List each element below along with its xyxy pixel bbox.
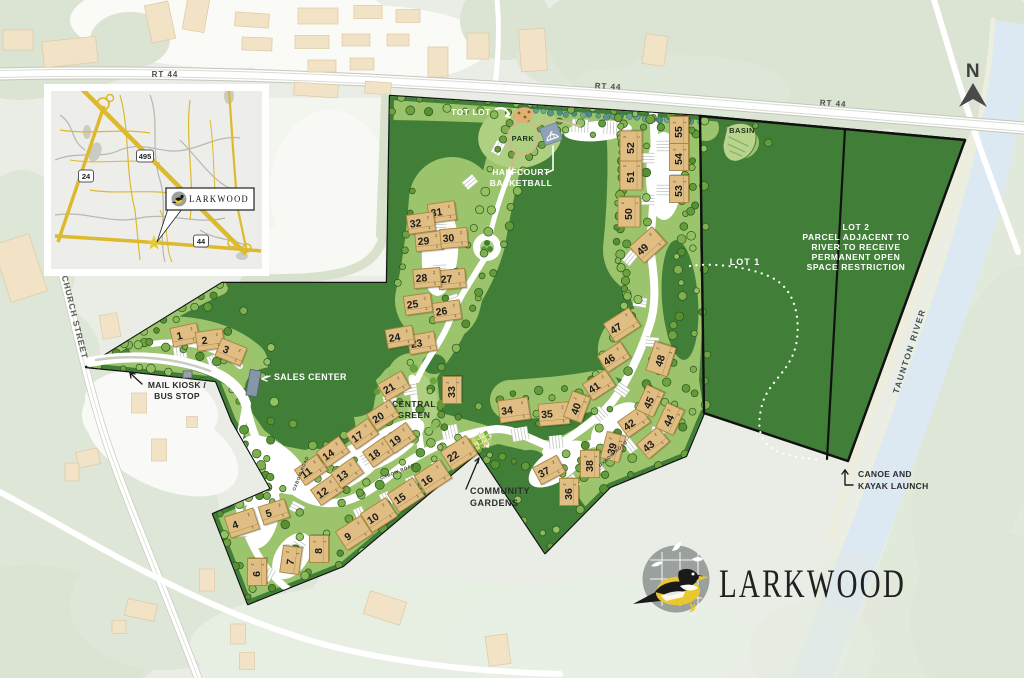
svg-text:CENTRAL: CENTRAL <box>392 399 436 409</box>
svg-text:PARK: PARK <box>512 134 535 143</box>
svg-text:1: 1 <box>434 281 436 285</box>
svg-text:36: 36 <box>563 488 575 500</box>
svg-text:51: 51 <box>625 171 637 183</box>
svg-text:2: 2 <box>435 234 437 238</box>
svg-text:24: 24 <box>388 331 402 345</box>
svg-text:2: 2 <box>563 483 567 485</box>
svg-text:1: 1 <box>594 455 598 457</box>
svg-text:44: 44 <box>197 237 206 246</box>
svg-text:BASIN: BASIN <box>729 126 755 135</box>
svg-text:2: 2 <box>673 180 677 182</box>
svg-text:RT 44: RT 44 <box>819 98 846 109</box>
svg-text:495: 495 <box>139 152 152 161</box>
svg-text:1: 1 <box>637 165 641 167</box>
svg-text:N: N <box>966 61 980 82</box>
svg-text:RT 44: RT 44 <box>152 70 179 79</box>
svg-text:54: 54 <box>673 153 685 165</box>
svg-text:2: 2 <box>460 231 462 235</box>
svg-text:1: 1 <box>436 244 438 248</box>
svg-text:1: 1 <box>573 483 577 485</box>
svg-text:38: 38 <box>584 460 596 472</box>
svg-text:2: 2 <box>584 455 588 457</box>
svg-text:1: 1 <box>456 381 460 383</box>
svg-text:32: 32 <box>409 217 422 231</box>
svg-text:1: 1 <box>635 202 639 204</box>
svg-text:SALES CENTER: SALES CENTER <box>274 372 347 382</box>
svg-text:CANOE AND: CANOE AND <box>858 469 912 479</box>
svg-text:2: 2 <box>623 136 627 138</box>
svg-text:TOT LOT: TOT LOT <box>451 107 491 117</box>
svg-text:RIVER TO RECEIVE: RIVER TO RECEIVE <box>811 242 900 252</box>
svg-text:1: 1 <box>459 282 461 286</box>
svg-text:28: 28 <box>415 272 428 285</box>
svg-text:2: 2 <box>673 148 677 150</box>
svg-text:KAYAK LAUNCH: KAYAK LAUNCH <box>858 481 929 491</box>
svg-text:COMMUNITY: COMMUNITY <box>470 486 530 496</box>
svg-text:1: 1 <box>637 136 641 138</box>
svg-text:2: 2 <box>313 540 317 542</box>
svg-text:2: 2 <box>673 121 677 123</box>
svg-text:BASKETBALL: BASKETBALL <box>490 178 553 188</box>
svg-text:GREEN: GREEN <box>398 410 431 420</box>
svg-text:34: 34 <box>500 404 513 418</box>
svg-text:GARDENS: GARDENS <box>470 498 519 508</box>
svg-text:2: 2 <box>561 405 563 409</box>
svg-text:52: 52 <box>625 142 637 154</box>
svg-text:1: 1 <box>562 419 564 423</box>
svg-text:1: 1 <box>683 180 687 182</box>
svg-text:1: 1 <box>323 540 327 542</box>
svg-text:50: 50 <box>623 208 635 220</box>
svg-text:24: 24 <box>82 172 91 181</box>
svg-text:LARKWOOD: LARKWOOD <box>189 194 249 204</box>
svg-text:HALFCOURT: HALFCOURT <box>492 167 550 177</box>
svg-text:1: 1 <box>261 563 265 565</box>
svg-text:1: 1 <box>461 241 463 245</box>
svg-text:33: 33 <box>446 386 458 398</box>
svg-text:2: 2 <box>458 272 460 276</box>
svg-text:LOT 1: LOT 1 <box>730 257 761 267</box>
svg-text:6: 6 <box>251 571 263 577</box>
svg-text:MAIL KIOSK /: MAIL KIOSK / <box>148 380 207 390</box>
svg-text:2: 2 <box>251 563 255 565</box>
svg-text:2: 2 <box>446 381 450 383</box>
svg-text:35: 35 <box>541 408 554 421</box>
svg-text:1: 1 <box>683 148 687 150</box>
svg-text:RT 44: RT 44 <box>595 81 622 91</box>
svg-text:8: 8 <box>313 548 325 554</box>
svg-text:55: 55 <box>673 126 685 138</box>
svg-text:26: 26 <box>435 305 448 319</box>
svg-text:1: 1 <box>683 121 687 123</box>
svg-text:PERMANENT OPEN: PERMANENT OPEN <box>812 252 901 262</box>
svg-text:30: 30 <box>442 232 455 245</box>
svg-text:PARCEL ADJACENT TO: PARCEL ADJACENT TO <box>802 232 909 242</box>
svg-text:LARKWOOD: LARKWOOD <box>719 561 906 606</box>
svg-text:BUS STOP: BUS STOP <box>154 391 200 401</box>
svg-text:LOT 2: LOT 2 <box>842 222 869 232</box>
svg-text:2: 2 <box>621 202 625 204</box>
svg-text:53: 53 <box>673 185 685 197</box>
svg-text:2: 2 <box>433 271 435 275</box>
svg-text:SPACE RESTRICTION: SPACE RESTRICTION <box>807 262 906 272</box>
svg-text:25: 25 <box>406 298 419 312</box>
svg-text:29: 29 <box>417 235 430 248</box>
svg-text:2: 2 <box>623 165 627 167</box>
